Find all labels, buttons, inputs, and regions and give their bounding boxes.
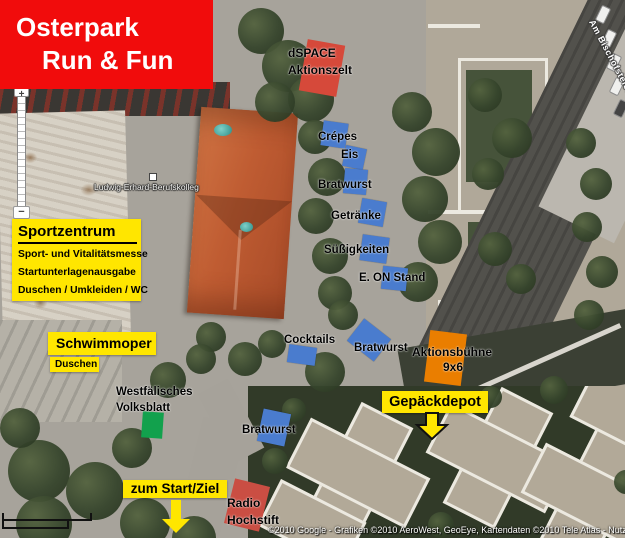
gepaeckdepot-infobox: Gepäckdepot bbox=[382, 391, 488, 413]
divider bbox=[18, 242, 137, 244]
label-volksblatt-line1: Westfälisches bbox=[116, 386, 193, 398]
roof-dome bbox=[214, 124, 232, 136]
tree bbox=[412, 128, 460, 176]
tree bbox=[392, 92, 432, 132]
tree bbox=[402, 176, 448, 222]
tree bbox=[0, 408, 40, 448]
label-cocktails: Cocktails bbox=[284, 334, 335, 346]
start-ziel-infobox: zum Start/Ziel bbox=[123, 480, 227, 498]
tree bbox=[478, 232, 512, 266]
roof-dome bbox=[240, 222, 253, 232]
label-getraenke: Getränke bbox=[331, 210, 381, 222]
tree bbox=[492, 118, 532, 158]
tree bbox=[506, 264, 536, 294]
tree bbox=[186, 344, 216, 374]
marker-volksblatt bbox=[141, 411, 164, 438]
map-attribution: ©2010 Google - Grafiken ©2010 AeroWest, … bbox=[268, 525, 625, 535]
tree bbox=[572, 212, 602, 242]
label-eon: E. ON Stand bbox=[359, 272, 425, 284]
tree bbox=[566, 128, 596, 158]
label-dspace: dSPACE Aktionszelt bbox=[288, 46, 352, 77]
map-canvas[interactable]: dSPACE Aktionszelt Crépes Eis Bratwurst … bbox=[0, 0, 625, 538]
down-arrow-icon bbox=[162, 500, 190, 534]
tree bbox=[298, 198, 334, 234]
label-dspace-line2: Aktionszelt bbox=[288, 63, 352, 77]
label-dspace-line1: dSPACE bbox=[288, 46, 352, 60]
scale-bar bbox=[2, 521, 69, 529]
label-aktionsbuehne: Aktionsbühne bbox=[412, 345, 492, 359]
tree bbox=[66, 462, 124, 520]
tree bbox=[468, 78, 502, 112]
label-volksblatt: Westfälisches Volksblatt bbox=[116, 386, 193, 414]
sportzentrum-line: Duschen / Umkleiden / WC bbox=[18, 285, 141, 296]
zoom-out-button[interactable]: − bbox=[13, 206, 30, 219]
label-volksblatt-line2: Volksblatt bbox=[116, 402, 193, 414]
down-arrow-icon bbox=[414, 412, 450, 440]
tree bbox=[580, 168, 612, 200]
sportzentrum-line: Startunterlagenausgabe bbox=[18, 267, 141, 278]
label-radio-line1: Radio bbox=[227, 496, 279, 510]
tree bbox=[258, 330, 286, 358]
zoom-slider[interactable] bbox=[17, 96, 26, 208]
label-bratwurst-mid: Bratwurst bbox=[354, 342, 408, 354]
tree bbox=[574, 300, 604, 330]
tree bbox=[328, 300, 358, 330]
scale-bar bbox=[2, 513, 92, 521]
label-eis: Eis bbox=[341, 149, 358, 161]
tree bbox=[418, 220, 462, 264]
tree bbox=[586, 256, 618, 288]
event-title-line2: Run & Fun bbox=[42, 45, 173, 76]
label-crepes: Crépes bbox=[318, 131, 357, 143]
event-title-line1: Osterpark bbox=[16, 12, 139, 43]
label-radio-hochstift: Radio Hochstift bbox=[227, 496, 279, 527]
school-roof bbox=[187, 107, 298, 319]
tree bbox=[255, 82, 295, 122]
tree bbox=[540, 376, 568, 404]
schwimmoper-infobox: Schwimmoper bbox=[48, 332, 156, 355]
label-suessigkeiten: Süßigkeiten bbox=[324, 244, 389, 256]
marker-cocktails bbox=[287, 344, 317, 366]
parapet-line bbox=[428, 24, 480, 28]
sportzentrum-title: Sportzentrum bbox=[18, 223, 141, 240]
sportzentrum-infobox: Sportzentrum Sport- und Vitalitätsmesse … bbox=[12, 219, 141, 301]
event-title-banner: Osterpark Run & Fun bbox=[0, 0, 213, 89]
label-aktionsbuehne-size: 9x6 bbox=[443, 360, 463, 374]
sportzentrum-line: Sport- und Vitalitätsmesse bbox=[18, 249, 141, 260]
poi-marker bbox=[149, 173, 157, 181]
schwimmoper-note: Duschen bbox=[50, 357, 99, 372]
tree bbox=[228, 342, 262, 376]
tree bbox=[262, 448, 288, 474]
tree bbox=[472, 158, 504, 190]
label-bratwurst-north: Bratwurst bbox=[318, 179, 372, 191]
place-label: Ludwig-Erhard-Berufskolleg bbox=[94, 182, 199, 192]
label-bratwurst-south: Bratwurst bbox=[242, 424, 296, 436]
tree bbox=[8, 440, 70, 502]
